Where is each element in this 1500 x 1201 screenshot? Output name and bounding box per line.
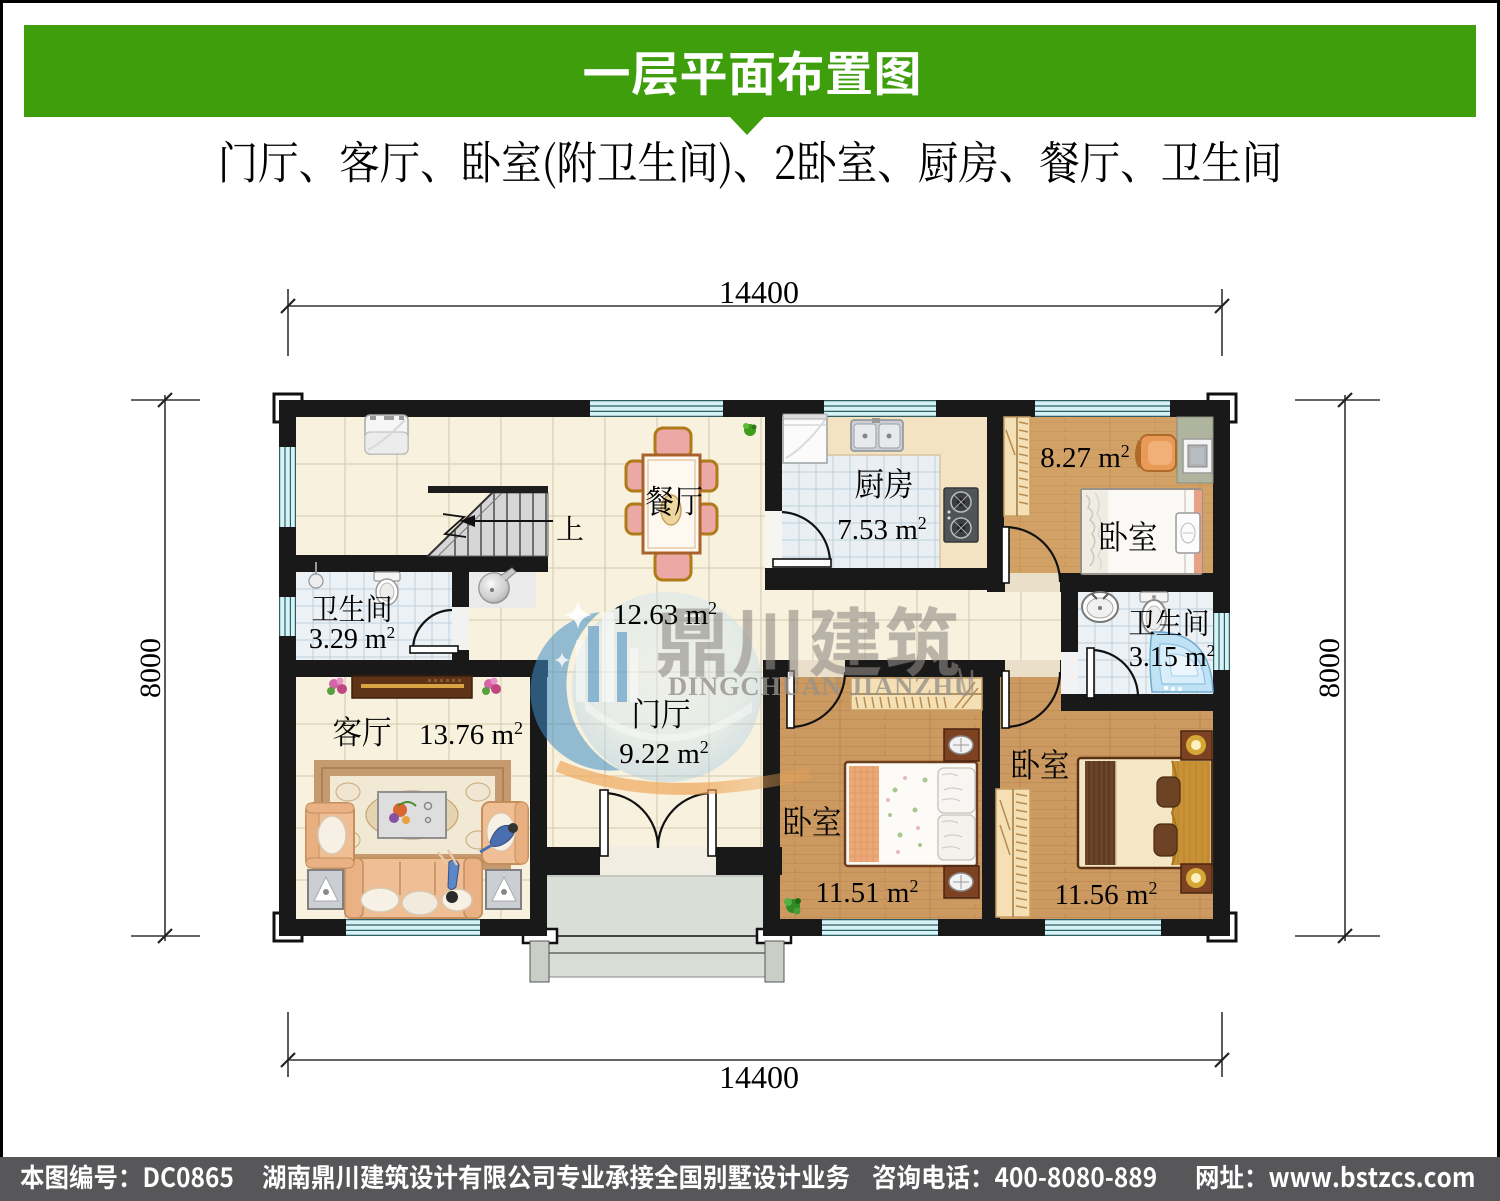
svg-text:8.27 m2: 8.27 m2 xyxy=(1040,441,1130,474)
svg-text:13.76 m2: 13.76 m2 xyxy=(419,718,523,751)
svg-text:9.22 m2: 9.22 m2 xyxy=(619,737,709,770)
svg-text:11.51 m2: 11.51 m2 xyxy=(816,876,919,909)
svg-text:12.63 m2: 12.63 m2 xyxy=(613,598,717,631)
svg-text:11.56 m2: 11.56 m2 xyxy=(1055,878,1158,911)
svg-text:3.29 m2: 3.29 m2 xyxy=(309,623,395,655)
svg-text:DINGCHUAN JIANZHU: DINGCHUAN JIANZHU xyxy=(668,671,974,701)
svg-text:3.15 m2: 3.15 m2 xyxy=(1129,641,1215,673)
svg-text:14400: 14400 xyxy=(719,274,799,310)
svg-text:8000: 8000 xyxy=(1313,638,1346,698)
svg-text:8000: 8000 xyxy=(134,638,167,698)
svg-text:7.53 m2: 7.53 m2 xyxy=(837,513,927,546)
svg-text:14400: 14400 xyxy=(719,1059,799,1095)
